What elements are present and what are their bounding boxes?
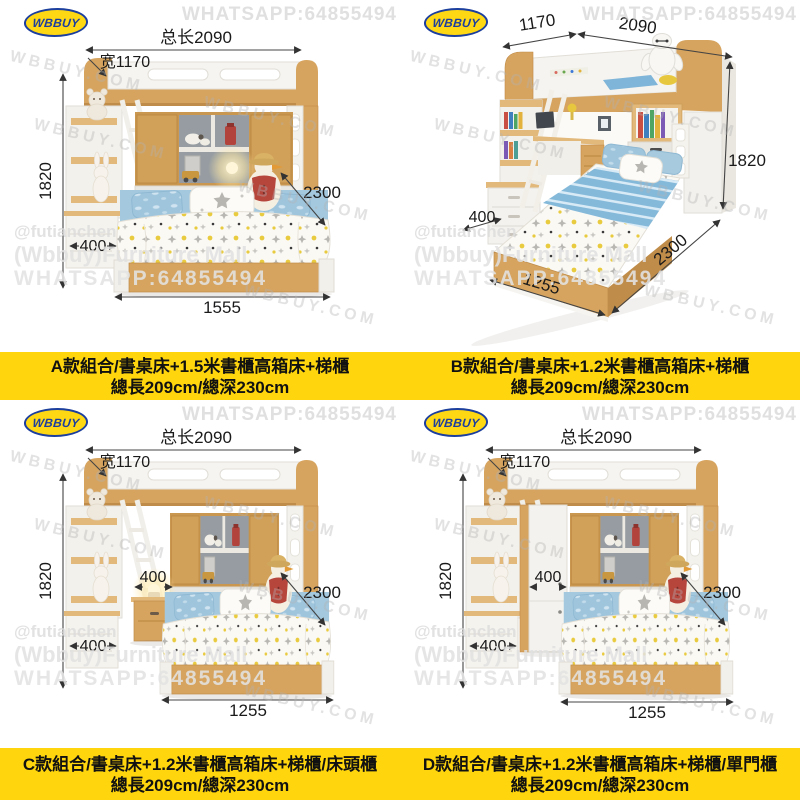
laptop (535, 111, 554, 128)
dim-width: 宽1170 (500, 453, 551, 471)
caption-a-line1: A款組合/書桌床+1.5米書櫃高箱床+梯櫃 (0, 356, 400, 377)
dim-height: 1820 (728, 151, 766, 170)
bunk-bed-perspective (470, 34, 736, 352)
dim-total-length: 总长2090 (560, 428, 632, 447)
caption-d-line2: 總長209cm/總深230cm (400, 775, 800, 796)
baymax-plush (639, 34, 685, 76)
dim-height: 1820 (436, 562, 455, 600)
dim-total-depth: 2300 (303, 183, 341, 202)
dim-height: 1820 (36, 562, 55, 600)
brand-logo-text: WBBUY (32, 16, 80, 30)
caption-a-line2: 總長209cm/總深230cm (0, 377, 400, 398)
caption-row-2: C款組合/書桌床+1.2米書櫃高箱床+梯櫃/床頭櫃 總長209cm/總深230c… (0, 748, 800, 800)
caption-d-line1: D款組合/書桌床+1.2米書櫃高箱床+梯櫃/單門櫃 (400, 754, 800, 775)
caption-b-line2: 總長209cm/總深230cm (400, 377, 800, 398)
dim-width: 宽1170 (100, 453, 151, 471)
brand-logo-text: WBBUY (432, 16, 480, 30)
dim-total-depth: 2300 (303, 583, 341, 602)
brand-logo-text: WBBUY (32, 416, 80, 430)
dim-stair-depth: 400 (469, 209, 496, 226)
dim-width: 1170 (518, 10, 557, 34)
bunk-bed-front-c (64, 458, 334, 700)
panel-b-illustration: 1170 2090 1820 400 1255 2300 (400, 0, 800, 352)
dim-total-depth: 2300 (703, 583, 741, 602)
panel-d: 总长2090 宽1170 1820 400 400 1255 2300 WBBU… (400, 400, 800, 748)
dim-total-length: 总长2090 (160, 28, 232, 47)
caption-c-line1: C款組合/書桌床+1.2米書櫃高箱床+梯櫃/床頭櫃 (0, 754, 400, 775)
caption-b-line1: B款組合/書桌床+1.2米書櫃高箱床+梯櫃 (400, 356, 800, 377)
panel-a: 总长2090 宽1170 1820 400 1555 2300 WBBUY WH… (0, 0, 400, 352)
panel-c: 总长2090 宽1170 1820 400 400 1255 2300 WBBU… (0, 400, 400, 748)
panel-a-illustration: 总长2090 宽1170 1820 400 1555 2300 (0, 0, 400, 352)
bunk-bed-front-d (464, 458, 733, 700)
caption-d: D款組合/書桌床+1.2米書櫃高箱床+梯櫃/單門櫃 總長209cm/總深230c… (400, 748, 800, 800)
caption-b: B款組合/書桌床+1.2米書櫃高箱床+梯櫃 總長209cm/總深230cm (400, 352, 800, 400)
dim-bed-length: 1255 (628, 703, 666, 722)
panel-c-illustration: 总长2090 宽1170 1820 400 400 1255 2300 (0, 400, 400, 748)
dim-cabinet-width: 400 (535, 569, 562, 586)
dim-bed-length: 1255 (229, 701, 267, 720)
panel-d-illustration: 总长2090 宽1170 1820 400 400 1255 2300 (400, 400, 800, 748)
dim-total-length: 2090 (618, 14, 658, 38)
dim-stair-depth: 400 (80, 638, 107, 655)
bunk-bed-front-a (64, 58, 334, 298)
dim-cabinet-width: 400 (140, 569, 167, 586)
panel-b: 1170 2090 1820 400 1255 2300 WBBUY WHATS… (400, 0, 800, 352)
desk-lamp (568, 104, 577, 113)
dim-total-length: 总长2090 (160, 428, 232, 447)
brand-logo-text: WBBUY (432, 416, 480, 430)
dim-bed-length: 1555 (203, 298, 241, 317)
dim-stair-depth: 400 (480, 638, 507, 655)
caption-a: A款組合/書桌床+1.5米書櫃高箱床+梯櫃 總長209cm/總深230cm (0, 352, 400, 400)
caption-c: C款組合/書桌床+1.2米書櫃高箱床+梯櫃/床頭櫃 總長209cm/總深230c… (0, 748, 400, 800)
dim-height: 1820 (36, 162, 55, 200)
dim-width: 宽1170 (100, 53, 151, 71)
caption-row-1: A款組合/書桌床+1.5米書櫃高箱床+梯櫃 總長209cm/總深230cm B款… (0, 352, 800, 400)
dim-stair-depth: 400 (80, 238, 107, 255)
caption-c-line2: 總長209cm/總深230cm (0, 775, 400, 796)
